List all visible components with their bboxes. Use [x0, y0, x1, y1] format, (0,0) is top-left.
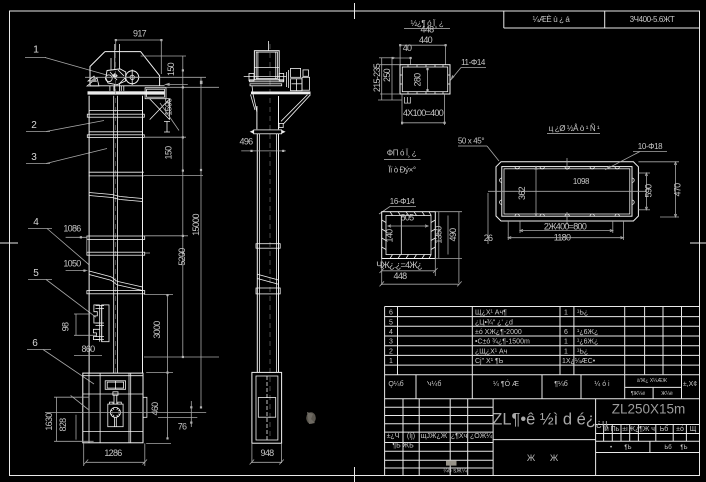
- svg-text:(Іj): (Іj): [407, 433, 415, 440]
- svg-text:ZL¶•ê ½ì d é¿¿ц: ZL¶•ê ½ì d é¿¿ц: [492, 411, 608, 430]
- svg-text:Сј" X¹ ¶Ь: Сј" X¹ ¶Ь: [475, 358, 504, 365]
- svg-text:¿Ц•¾" ¿' ¿d: ¿Ц•¾" ¿' ¿d: [475, 319, 513, 326]
- svg-text:150: 150: [166, 62, 176, 76]
- svg-text:¿¶Xч: ¿¶Xч: [451, 433, 468, 440]
- svg-text:•С±ó ¾¿¶-1500m: •С±ó ¾¿¶-1500m: [475, 339, 530, 346]
- svg-text:•: •: [610, 445, 612, 451]
- svg-text:¹¿6Ж¿: ¹¿6Ж¿: [577, 329, 598, 336]
- svg-text:Пь: Пь: [611, 426, 620, 433]
- svg-text:Щ: Щ: [690, 426, 697, 433]
- svg-text:362: 362: [517, 186, 527, 200]
- svg-text:1050: 1050: [63, 259, 81, 269]
- svg-text:98: 98: [61, 322, 71, 331]
- svg-text:6: 6: [32, 338, 38, 349]
- svg-text:50 x 45°: 50 x 45°: [458, 137, 484, 146]
- svg-text:280: 280: [413, 73, 423, 87]
- svg-text:250: 250: [382, 68, 392, 82]
- svg-text:1: 1: [389, 358, 393, 365]
- svg-text:Ьб: Ьб: [660, 425, 669, 433]
- svg-text:ZL250X15m: ZL250X15m: [612, 402, 686, 417]
- svg-text:1286: 1286: [104, 448, 122, 458]
- svg-text:ä'Ж¿ X¼ÆЖ: ä'Ж¿ X¼ÆЖ: [637, 378, 667, 384]
- svg-text:¹Ь¿: ¹Ь¿: [577, 348, 588, 355]
- svg-text:Ж: Ж: [527, 453, 536, 463]
- svg-text:¿ÓЖ¼: ¿ÓЖ¼: [470, 431, 492, 440]
- svg-text:Ьб: Ьб: [664, 445, 672, 451]
- svg-text:¹¿6Ж¿: ¹¿6Ж¿: [577, 339, 598, 346]
- svg-text:2: 2: [389, 348, 393, 355]
- svg-text:±,X¢: ±,X¢: [683, 381, 697, 388]
- svg-text:590: 590: [644, 184, 654, 198]
- svg-text:±ó XЖ¿¶-2000: ±ó XЖ¿¶-2000: [475, 329, 522, 336]
- svg-text:917: 917: [133, 29, 147, 39]
- svg-text:16-Φ14: 16-Φ14: [390, 197, 415, 206]
- svg-text:215-235: 215-235: [372, 63, 382, 92]
- svg-text:860: 860: [82, 344, 96, 354]
- svg-text:150: 150: [164, 146, 174, 160]
- svg-text:1X¿¼ÆС•: 1X¿¼ÆС•: [562, 358, 596, 365]
- svg-text:440: 440: [419, 35, 433, 45]
- svg-text:3: 3: [389, 339, 393, 346]
- svg-text:±ó: ±ó: [676, 426, 684, 433]
- svg-text:¶Ь ЖЬ: ¶Ь ЖЬ: [392, 443, 414, 450]
- svg-text:¶Ж ч: ¶Ж ч: [639, 426, 655, 433]
- svg-text:1: 1: [564, 310, 568, 317]
- svg-text:4: 4: [33, 217, 39, 228]
- svg-text:Ïï ò Ðý×°: Ïï ò Ðý×°: [388, 166, 416, 175]
- svg-text:Ǫ¼б: Ǫ¼б: [388, 380, 403, 388]
- svg-text:805: 805: [401, 213, 415, 223]
- svg-text:¶Ж¼ё: ¶Ж¼ё: [631, 391, 645, 397]
- svg-text:11-Φ14: 11-Φ14: [461, 58, 486, 67]
- svg-text:4X100=400: 4X100=400: [403, 108, 444, 118]
- svg-text:4: 4: [389, 329, 393, 336]
- svg-text:¼ ¶Ó Æ: ¼ ¶Ó Æ: [493, 379, 519, 388]
- svg-text:496: 496: [240, 137, 254, 147]
- svg-text:5: 5: [389, 319, 393, 326]
- svg-text:1630: 1630: [44, 413, 54, 431]
- svg-text:6: 6: [564, 329, 568, 336]
- svg-text:948: 948: [261, 448, 275, 458]
- svg-text:щJЖ¿Ж: щJЖ¿Ж: [421, 433, 448, 440]
- svg-text:10-Φ18: 10-Φ18: [638, 142, 663, 151]
- svg-text:2Ж400=800: 2Ж400=800: [544, 222, 587, 232]
- svg-text:448: 448: [394, 271, 408, 281]
- svg-text:2: 2: [31, 120, 37, 131]
- svg-text:1: 1: [33, 44, 39, 56]
- svg-text:Ж¿: Ж¿: [629, 426, 640, 433]
- svg-text:¼б ѕЖ¼: ¼б ѕЖ¼: [443, 469, 468, 475]
- svg-text:Щ¿X¹ Ач¶: Щ¿X¹ Ач¶: [475, 310, 507, 317]
- svg-text:ц ¿Ø ½Å ò ¹ Ñ ¹: ц ¿Ø ½Å ò ¹ Ñ ¹: [549, 124, 600, 133]
- svg-text:76: 76: [178, 422, 187, 432]
- svg-text:1590: 1590: [164, 98, 174, 116]
- svg-text:828: 828: [58, 418, 68, 432]
- svg-text:460: 460: [150, 402, 160, 416]
- svg-text:140: 140: [385, 229, 395, 243]
- svg-text:1: 1: [564, 348, 568, 355]
- svg-text:3000: 3000: [152, 321, 162, 339]
- svg-text:40: 40: [403, 43, 412, 53]
- svg-text:¶Ь: ¶Ь: [624, 445, 631, 451]
- svg-text:448: 448: [421, 25, 435, 35]
- svg-text:¼ÆÈ ù ¿ á: ¼ÆÈ ù ¿ á: [533, 15, 571, 24]
- svg-text:ій: ій: [603, 425, 609, 433]
- svg-text:Ш: Ш: [403, 96, 411, 106]
- svg-text:ΦΠ ó Ï¸ ¿: ΦΠ ó Ï¸ ¿: [387, 149, 417, 158]
- svg-text:3Ч400-5.6ЖΤ: 3Ч400-5.6ЖΤ: [630, 15, 675, 24]
- svg-text:¶¼б: ¶¼б: [554, 380, 568, 388]
- svg-text:Ж¼ё: Ж¼ё: [661, 391, 673, 397]
- svg-text:3: 3: [31, 152, 37, 163]
- svg-text:¶Ь: ¶Ь: [680, 445, 687, 451]
- svg-text:±¿Ч: ±¿Ч: [387, 433, 400, 440]
- svg-text:±і: ±і: [622, 425, 628, 433]
- svg-text:6: 6: [389, 310, 393, 317]
- svg-text:15000: 15000: [191, 214, 201, 236]
- svg-text:5200: 5200: [177, 248, 187, 266]
- svg-text:1098: 1098: [573, 177, 590, 186]
- svg-text:¼ ó i: ¼ ó i: [594, 381, 610, 388]
- svg-text:5: 5: [33, 268, 39, 279]
- svg-text:1086: 1086: [63, 224, 81, 234]
- svg-text:490: 490: [448, 228, 458, 242]
- svg-text:¿Щ¿X¹ Ач: ¿Щ¿X¹ Ач: [475, 348, 508, 355]
- svg-text:1: 1: [564, 339, 568, 346]
- svg-text:1350: 1350: [434, 226, 444, 244]
- svg-text:470: 470: [673, 183, 683, 197]
- svg-text:Ж: Ж: [550, 453, 559, 463]
- svg-text:¹Ь¿: ¹Ь¿: [577, 310, 588, 317]
- svg-text:'ч¼б: 'ч¼б: [427, 380, 442, 388]
